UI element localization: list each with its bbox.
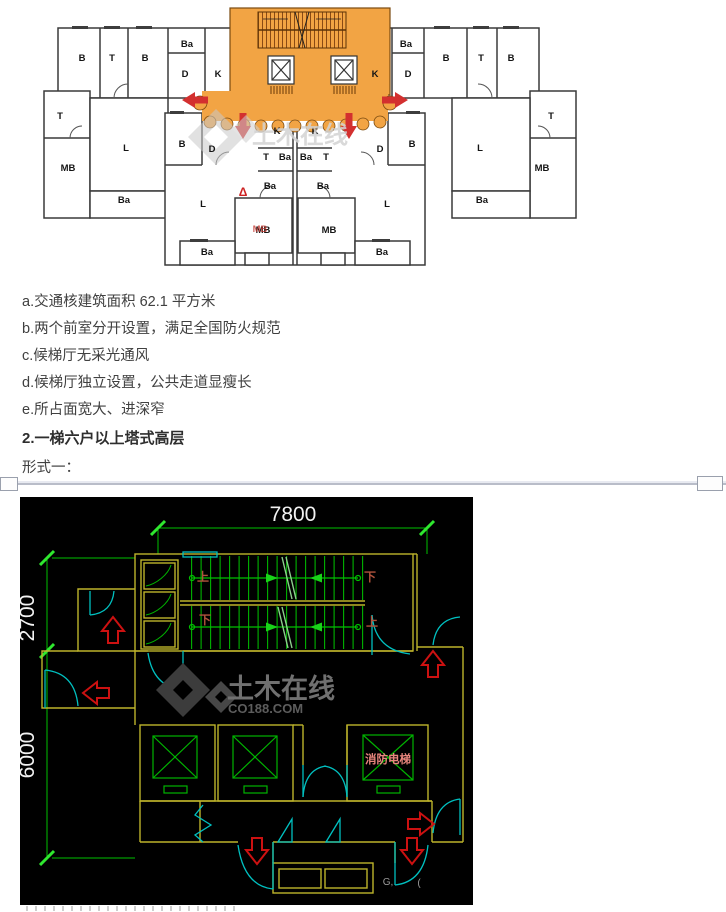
arrow-down-icon [246, 838, 268, 864]
room-label: MB [535, 163, 550, 174]
arrow-down-icon [401, 838, 423, 864]
room-label: B [508, 53, 515, 64]
room-label: T [323, 152, 329, 163]
clipped-text-line [26, 906, 238, 911]
plan1-watermark-text: 土木在线 [252, 121, 348, 149]
arrow-right-icon [408, 813, 434, 835]
subsection-label: 形式一： [22, 458, 80, 478]
stair-down-label: 下 [199, 613, 211, 627]
watermark-fragment: ( [417, 878, 421, 889]
watermark-fragment: G, [383, 877, 394, 888]
room-label: Ba [118, 195, 131, 206]
list-item-e: e.所占面宽大、进深窄 [22, 397, 702, 424]
page-break-marker-right [697, 476, 723, 491]
red-triangle-annotation: Δ [239, 185, 248, 199]
room-label: D [182, 69, 189, 80]
list-item-a: a.交通核建筑面积 62.1 平方米 [22, 289, 702, 316]
fire-elevator-label: 消防电梯 [365, 752, 411, 766]
room-label: T [109, 53, 115, 64]
room-label: B [79, 53, 86, 64]
room-label: L [384, 199, 390, 210]
room-label: MB [61, 163, 76, 174]
page-break-marker-left [0, 477, 18, 491]
room-label: Ba [400, 39, 413, 50]
red-stamp-annotation: MB [253, 224, 268, 235]
core-staircase [258, 12, 346, 48]
list-item-d: d.候梯厅独立设置，公共走道显瘦长 [22, 370, 702, 397]
room-label: B [409, 139, 416, 150]
dim-top-7800: 7800 [270, 503, 317, 526]
room-label: B [142, 53, 149, 64]
exit-arrows [83, 617, 444, 864]
room-label: Ba [264, 181, 277, 192]
section-heading: 2.一梯六户以上塔式高层 [22, 429, 185, 449]
room-label: Ba [317, 181, 330, 192]
cad-floor-plan-image: 780027006000上下下上消防电梯土木在线CO188.COMG,( [20, 497, 473, 905]
room-label: MB [322, 225, 337, 236]
watermark-url: CO188.COM [228, 701, 303, 716]
room-label: L [477, 143, 483, 154]
room-label: D [209, 144, 216, 155]
dim-left-2700: 2700 [20, 595, 39, 642]
room-label: T [263, 152, 269, 163]
room-label: L [123, 143, 129, 154]
room-label: K [372, 69, 379, 80]
stair-up-label: 上 [197, 569, 209, 584]
stair-up-label: 上 [366, 614, 378, 629]
arrow-up-icon [102, 617, 124, 643]
room-label: B [179, 139, 186, 150]
room-label: L [200, 199, 206, 210]
room-label: Ba [476, 195, 489, 206]
room-label: T [57, 111, 63, 122]
unit-floor-plan-image: BTBBaDKKBaDBTBTMBLBaTMBLBaKKTBaBaTBaBaBD… [30, 3, 590, 281]
watermark-logo-icon [156, 663, 237, 717]
room-label: D [377, 144, 384, 155]
room-label: K [215, 69, 222, 80]
room-label: Ba [376, 247, 389, 258]
room-label: T [548, 111, 554, 122]
room-label: Ba [181, 39, 194, 50]
arrow-up-icon [422, 651, 444, 677]
room-label: D [405, 69, 412, 80]
arrow-left-icon [83, 682, 109, 704]
room-label: Ba [300, 152, 313, 163]
room-label: B [443, 53, 450, 64]
dim-left-6000: 6000 [20, 732, 39, 779]
page-break-line [0, 483, 726, 485]
room-label: Ba [279, 152, 292, 163]
list-item-c: c.候梯厅无采光通风 [22, 343, 702, 370]
watermark-text: 土木在线 [227, 674, 335, 704]
stair-down-label: 下 [364, 570, 376, 584]
room-label: T [478, 53, 484, 64]
notes-list: a.交通核建筑面积 62.1 平方米 b.两个前室分开设置，满足全国防火规范 c… [22, 289, 702, 424]
room-label: Ba [201, 247, 214, 258]
list-item-b: b.两个前室分开设置，满足全国防火规范 [22, 316, 702, 343]
